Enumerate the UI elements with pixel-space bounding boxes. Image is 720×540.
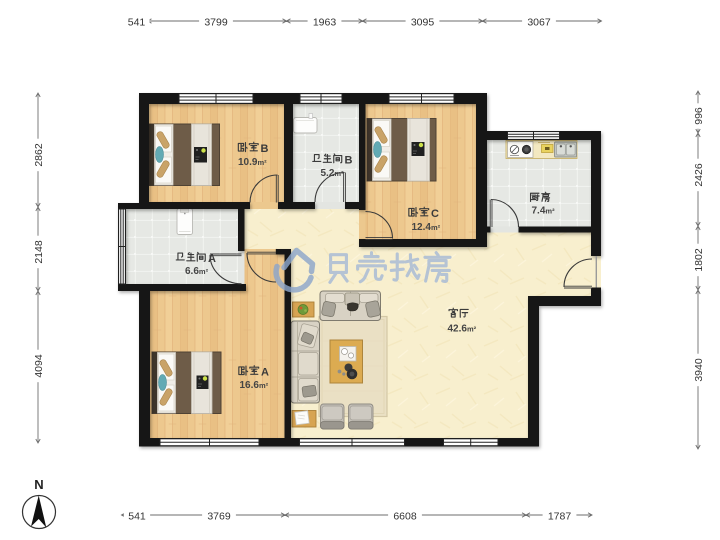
svg-text:5.2m²: 5.2m²	[321, 168, 345, 179]
svg-text:10.9m²: 10.9m²	[238, 157, 267, 168]
svg-text:1802: 1802	[693, 248, 705, 272]
svg-text:6.6m²: 6.6m²	[185, 266, 209, 277]
svg-text:4094: 4094	[33, 354, 45, 378]
svg-text:3799: 3799	[204, 16, 228, 28]
svg-text:1963: 1963	[313, 16, 337, 28]
svg-text:2426: 2426	[693, 163, 705, 187]
svg-text:3769: 3769	[207, 510, 231, 522]
svg-text:996: 996	[693, 107, 705, 125]
svg-text:42.6m²: 42.6m²	[448, 323, 477, 334]
svg-text:A: A	[208, 253, 216, 265]
svg-text:541: 541	[128, 510, 146, 522]
svg-text:B: B	[261, 143, 269, 155]
svg-text:3067: 3067	[527, 16, 551, 28]
svg-text:2862: 2862	[33, 143, 45, 167]
svg-text:B: B	[345, 154, 353, 166]
svg-text:12.4m²: 12.4m²	[412, 222, 441, 233]
svg-text:1787: 1787	[548, 510, 572, 522]
svg-text:N: N	[34, 477, 43, 492]
svg-text:A: A	[261, 366, 269, 378]
svg-text:7.4m²: 7.4m²	[532, 205, 556, 216]
svg-text:3940: 3940	[693, 358, 705, 382]
svg-text:3095: 3095	[411, 16, 435, 28]
svg-text:6608: 6608	[393, 510, 417, 522]
svg-text:16.6m²: 16.6m²	[240, 380, 269, 391]
svg-text:541: 541	[128, 16, 146, 28]
svg-text:C: C	[431, 208, 439, 220]
svg-text:2148: 2148	[33, 240, 45, 264]
